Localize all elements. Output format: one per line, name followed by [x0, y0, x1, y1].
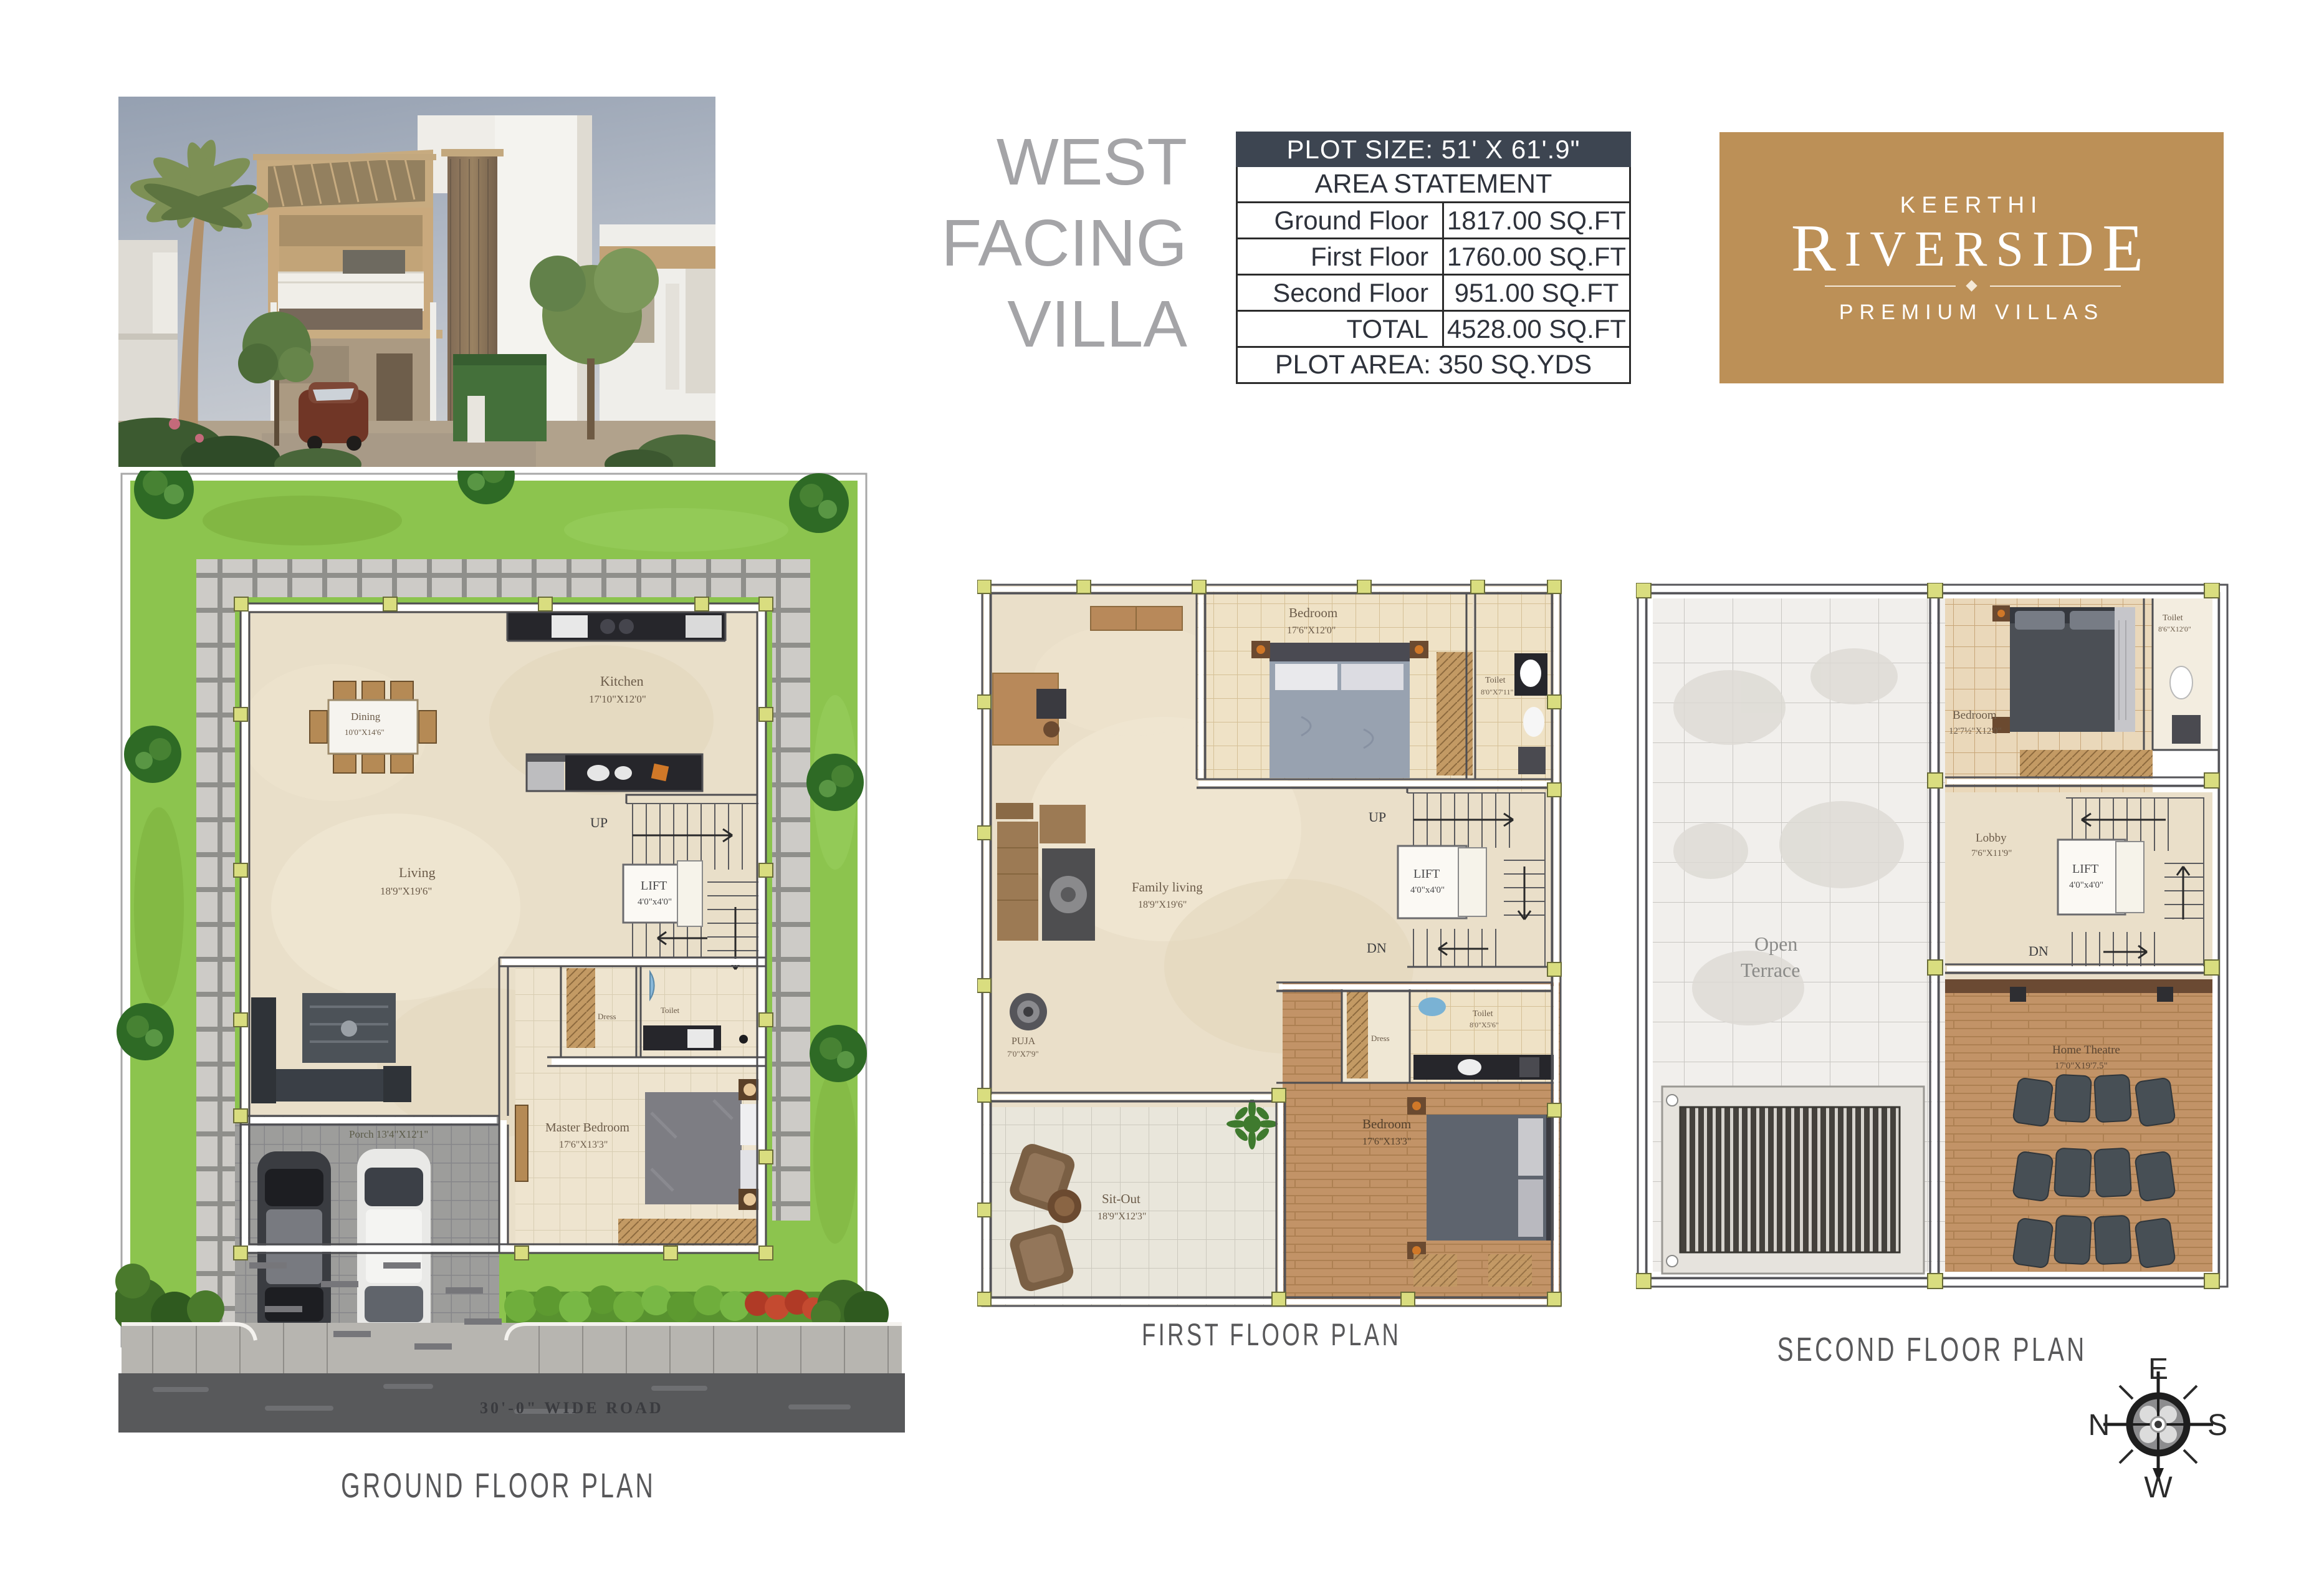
- svg-text:4'0"x4'0": 4'0"x4'0": [638, 897, 672, 907]
- svg-text:12'7½"X12'0": 12'7½"X12'0": [1949, 726, 2002, 736]
- svg-text:17'6"X13'3": 17'6"X13'3": [559, 1140, 608, 1150]
- svg-text:Dress: Dress: [1371, 1034, 1390, 1043]
- svg-text:Bedroom: Bedroom: [1953, 709, 1997, 722]
- svg-text:17'6"X12'0": 17'6"X12'0": [1287, 625, 1336, 636]
- svg-text:Bedroom: Bedroom: [1362, 1116, 1411, 1131]
- svg-text:8'6"X12'0": 8'6"X12'0": [2158, 625, 2191, 633]
- svg-text:17'10"X12'0": 17'10"X12'0": [589, 693, 646, 705]
- svg-text:Toilet: Toilet: [1473, 1009, 1493, 1019]
- svg-text:17'0"X19'7.5": 17'0"X19'7.5": [2055, 1061, 2108, 1071]
- svg-text:S: S: [2207, 1409, 2227, 1442]
- svg-text:Bedroom: Bedroom: [1289, 605, 1337, 620]
- svg-text:Dress: Dress: [598, 1012, 616, 1021]
- svg-text:Toilet: Toilet: [1485, 676, 1506, 685]
- svg-text:7'0"X7'9": 7'0"X7'9": [1007, 1049, 1039, 1058]
- svg-text:DN: DN: [2029, 943, 2049, 959]
- svg-text:PUJA: PUJA: [1011, 1036, 1036, 1047]
- svg-text:Home Theatre: Home Theatre: [2052, 1044, 2120, 1057]
- svg-text:Family living: Family living: [1132, 880, 1203, 895]
- svg-text:E: E: [2148, 1353, 2168, 1386]
- svg-text:18'9"X19'6": 18'9"X19'6": [380, 885, 432, 897]
- svg-text:LIFT: LIFT: [2072, 862, 2098, 876]
- svg-text:Dining: Dining: [351, 711, 381, 722]
- svg-text:Toilet: Toilet: [661, 1006, 680, 1015]
- svg-text:4'0"x4'0": 4'0"x4'0": [2069, 880, 2103, 890]
- svg-text:18'9"X12'3": 18'9"X12'3": [1097, 1211, 1146, 1222]
- svg-text:Terrace: Terrace: [1741, 959, 1800, 981]
- svg-text:18'9"X19'6": 18'9"X19'6": [1138, 900, 1187, 910]
- svg-text:Porch 13'4"X12'1": Porch 13'4"X12'1": [349, 1128, 428, 1140]
- svg-text:W: W: [2144, 1471, 2173, 1502]
- svg-text:30'-0" WIDE ROAD: 30'-0" WIDE ROAD: [480, 1399, 664, 1417]
- svg-text:UP: UP: [1369, 809, 1386, 825]
- svg-text:Toilet: Toilet: [2163, 613, 2183, 623]
- svg-text:LIFT: LIFT: [641, 879, 667, 893]
- svg-text:N: N: [2088, 1409, 2110, 1442]
- svg-text:Lobby: Lobby: [1976, 832, 2007, 845]
- svg-text:Kitchen: Kitchen: [600, 673, 644, 689]
- svg-text:Open: Open: [1754, 933, 1797, 955]
- svg-text:7'6"X11'9": 7'6"X11'9": [1971, 848, 2012, 858]
- svg-text:8'0"X5'6": 8'0"X5'6": [1470, 1020, 1499, 1029]
- svg-text:8'0"X7'11": 8'0"X7'11": [1481, 688, 1513, 696]
- svg-text:10'0"X14'6": 10'0"X14'6": [345, 727, 385, 737]
- svg-text:LIFT: LIFT: [1413, 867, 1440, 881]
- svg-text:DN: DN: [1367, 940, 1387, 956]
- svg-text:4'0"x4'0": 4'0"x4'0": [1410, 885, 1445, 895]
- svg-text:UP: UP: [590, 815, 608, 830]
- svg-text:Living: Living: [399, 865, 436, 880]
- svg-text:17'6"X13'3": 17'6"X13'3": [1362, 1136, 1411, 1147]
- svg-text:Sit-Out: Sit-Out: [1102, 1191, 1140, 1206]
- svg-text:Master Bedroom: Master Bedroom: [545, 1121, 629, 1135]
